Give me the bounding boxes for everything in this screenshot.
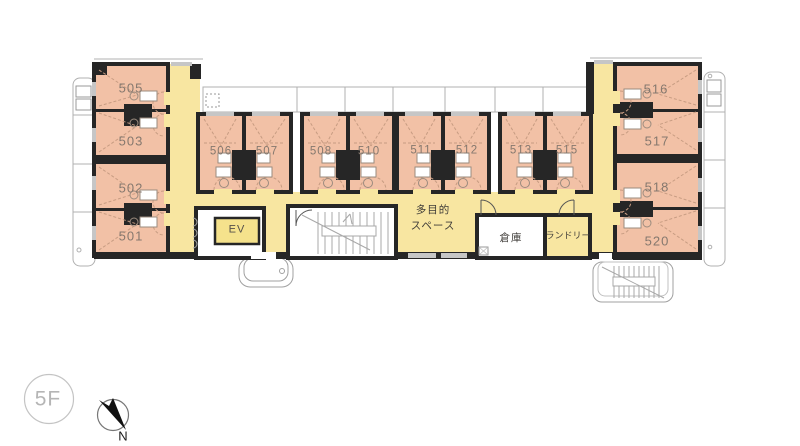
room-label-502: 502 [119, 182, 144, 195]
room-label-512: 512 [456, 145, 478, 157]
room-label-503: 503 [119, 135, 144, 148]
elevator-label: EV [229, 225, 246, 236]
room-label-506: 506 [210, 146, 232, 158]
room-label-511: 511 [410, 145, 431, 157]
room-label-507: 507 [256, 146, 278, 158]
room-label-505: 505 [119, 82, 144, 95]
room-label-518: 518 [645, 181, 670, 194]
laundry-label: ランドリー [545, 232, 590, 241]
room-label-515: 515 [556, 145, 578, 157]
stairwell [288, 206, 396, 258]
room-label-517: 517 [645, 135, 670, 148]
room-label-513: 513 [510, 145, 532, 157]
room-label-510: 510 [358, 146, 380, 158]
multipurpose-space-label-line1: 多目的 [416, 205, 451, 216]
room-label-508: 508 [310, 146, 332, 158]
multipurpose-space-label-line2: スペース [411, 221, 456, 232]
storage-label: 倉庫 [500, 233, 523, 244]
compass [98, 398, 129, 431]
compass-north-label: N [118, 430, 127, 443]
room-label-516: 516 [644, 83, 669, 96]
floorplan-page: 505 503 502 501 506 507 508 510 511 512 … [0, 0, 800, 446]
room-label-501: 501 [119, 230, 144, 243]
room-label-520: 520 [645, 235, 670, 248]
floor-number-badge: 5F [35, 389, 62, 410]
floor-plan-drawing [0, 0, 800, 446]
